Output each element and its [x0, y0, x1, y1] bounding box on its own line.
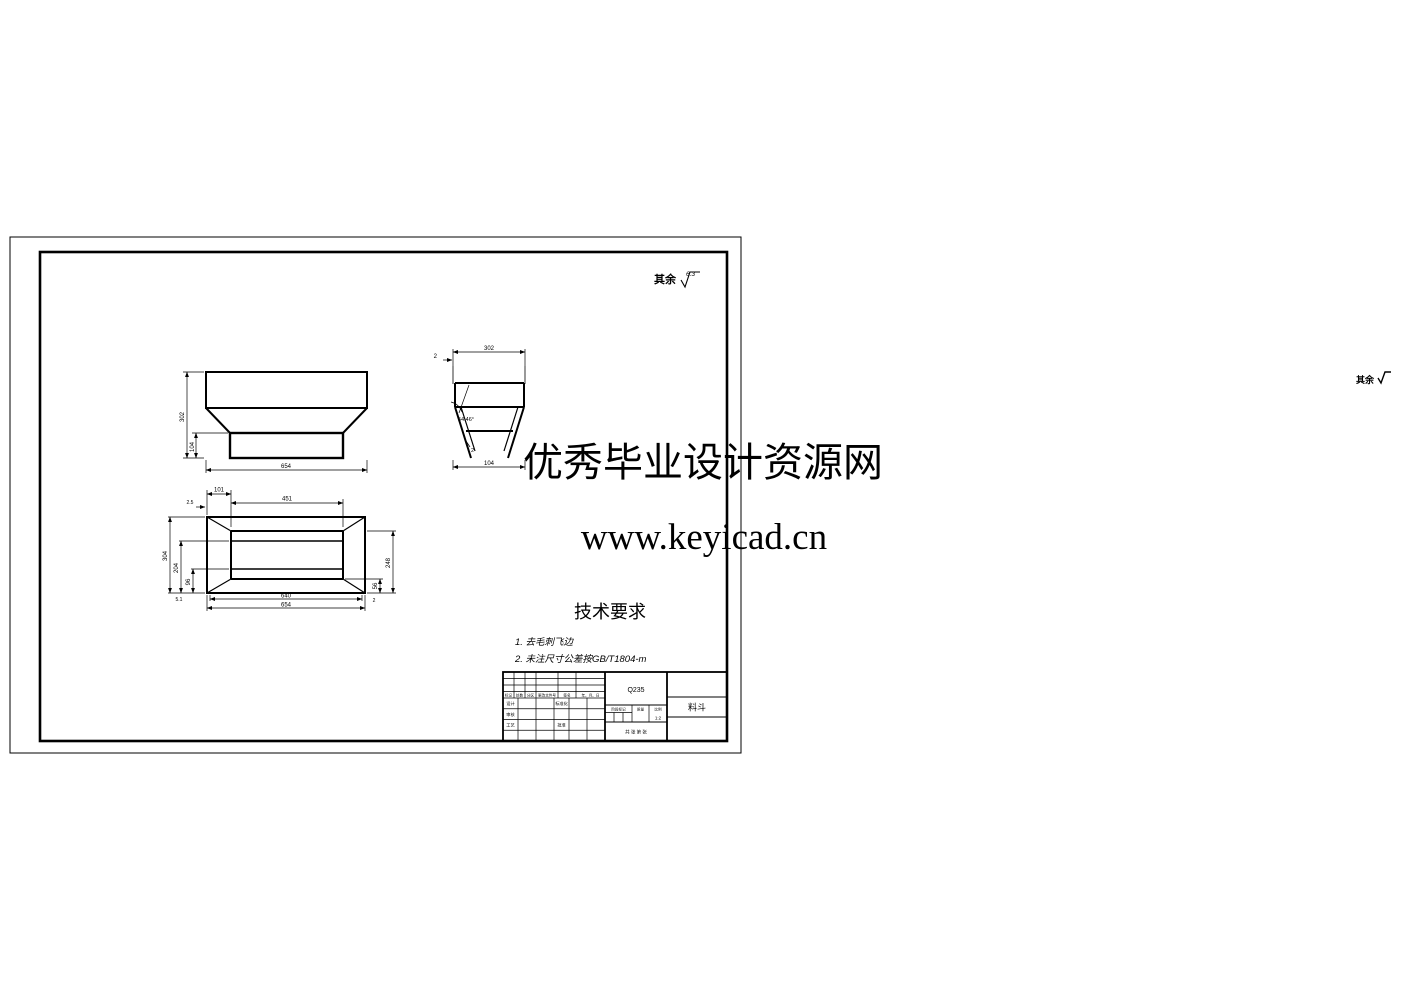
- side-view-outline: [453, 366, 525, 458]
- tech-requirement-1: 1. 去毛刺飞边: [515, 637, 575, 648]
- plan-dim-corner: 2: [373, 598, 376, 604]
- tb-sheets: 共 张 第 张: [625, 729, 647, 736]
- tb-rev-date: 年、月、日: [582, 693, 600, 698]
- roughness-prefix: 其余: [654, 272, 677, 286]
- side-dim-top-width: 302: [484, 346, 495, 352]
- drawing-sheet: 其余 6.3 302 104 654: [0, 0, 1403, 992]
- tech-requirements: 技术要求 1. 去毛刺飞边 2. 未注尺寸公差按GB/T1804-m: [514, 602, 647, 665]
- tb-rev-zone: 分区: [527, 693, 535, 698]
- plan-view: 101 451 2.5 304 204 96 248 56 2 5.1 640 …: [163, 488, 396, 612]
- tb-role-standardization: 标准化: [555, 700, 568, 707]
- watermark-line1: 优秀毕业设计资源网: [523, 440, 883, 485]
- corner-note: 其余: [1356, 372, 1391, 385]
- plan-dim-inner-top: 451: [282, 497, 293, 503]
- plan-dim-right-full: 248: [386, 557, 392, 568]
- sheet-borders: [10, 237, 741, 753]
- tb-role-approve: 批准: [557, 722, 565, 729]
- plan-dim-bottom-inner: 640: [281, 594, 292, 600]
- plan-dim-flange: 101: [214, 488, 225, 494]
- front-dim-lower-height: 104: [190, 441, 196, 452]
- watermark-line2: www.keyicad.cn: [581, 517, 827, 558]
- plan-dim-left-mid: 204: [174, 562, 180, 573]
- tb-material: Q235: [627, 687, 644, 694]
- plan-dim-bottom-offset: 5.1: [176, 597, 183, 603]
- plan-dim-bottom-full: 654: [281, 603, 292, 609]
- tb-role-check: 审核: [506, 711, 515, 718]
- tb-mass-label: 质量: [637, 707, 645, 712]
- front-dim-width: 654: [281, 464, 292, 470]
- plan-view-outline: [207, 517, 365, 593]
- front-view-outline: [206, 372, 367, 458]
- front-dim-height: 302: [180, 411, 186, 422]
- side-view: 302 2 54.46° 2 104: [434, 346, 525, 470]
- roughness-value: 6.3: [686, 271, 695, 278]
- tb-role-process: 工艺: [506, 723, 514, 728]
- tech-requirements-title: 技术要求: [574, 602, 646, 622]
- title-block: 标记 处数 分区 更改文件号 签名 年、月、日 设计 标准化 审核 工艺 批准 …: [503, 672, 727, 741]
- watermark: 优秀毕业设计资源网 www.keyicad.cn: [523, 440, 883, 558]
- tb-part-name: 料斗: [688, 702, 706, 713]
- tech-requirement-2: 2. 未注尺寸公差按GB/T1804-m: [514, 653, 647, 665]
- tb-role-design: 设计: [506, 700, 514, 707]
- corner-note-text: 其余: [1356, 374, 1375, 385]
- plan-dim-offset: 2.5: [187, 500, 194, 506]
- surface-roughness-note: 其余 6.3: [654, 271, 700, 287]
- side-dim-angle: 54.46°: [458, 417, 474, 423]
- tb-rev-sign: 签名: [563, 693, 571, 698]
- tb-scale-value: 1:2: [655, 715, 662, 720]
- side-dim-bottom-width: 104: [484, 461, 495, 467]
- tb-scale-label: 比例: [654, 707, 662, 712]
- tb-rev-docno: 更改文件号: [538, 693, 556, 698]
- plan-dim-right-small: 56: [373, 582, 379, 589]
- plan-dim-left-small: 96: [186, 578, 192, 585]
- corner-note-check-icon: [1378, 372, 1391, 383]
- side-dim-wall: 2: [471, 448, 474, 454]
- cad-drawing-canvas: 其余 6.3 302 104 654: [0, 0, 1403, 992]
- tb-rev-mark: 标记: [505, 693, 513, 698]
- front-view: 302 104 654: [180, 372, 367, 473]
- tb-stage-label: 阶段标记: [611, 707, 626, 712]
- plan-dim-left-full: 304: [163, 550, 169, 561]
- side-dim-thickness: 2: [434, 354, 438, 360]
- tb-rev-count: 处数: [516, 693, 524, 698]
